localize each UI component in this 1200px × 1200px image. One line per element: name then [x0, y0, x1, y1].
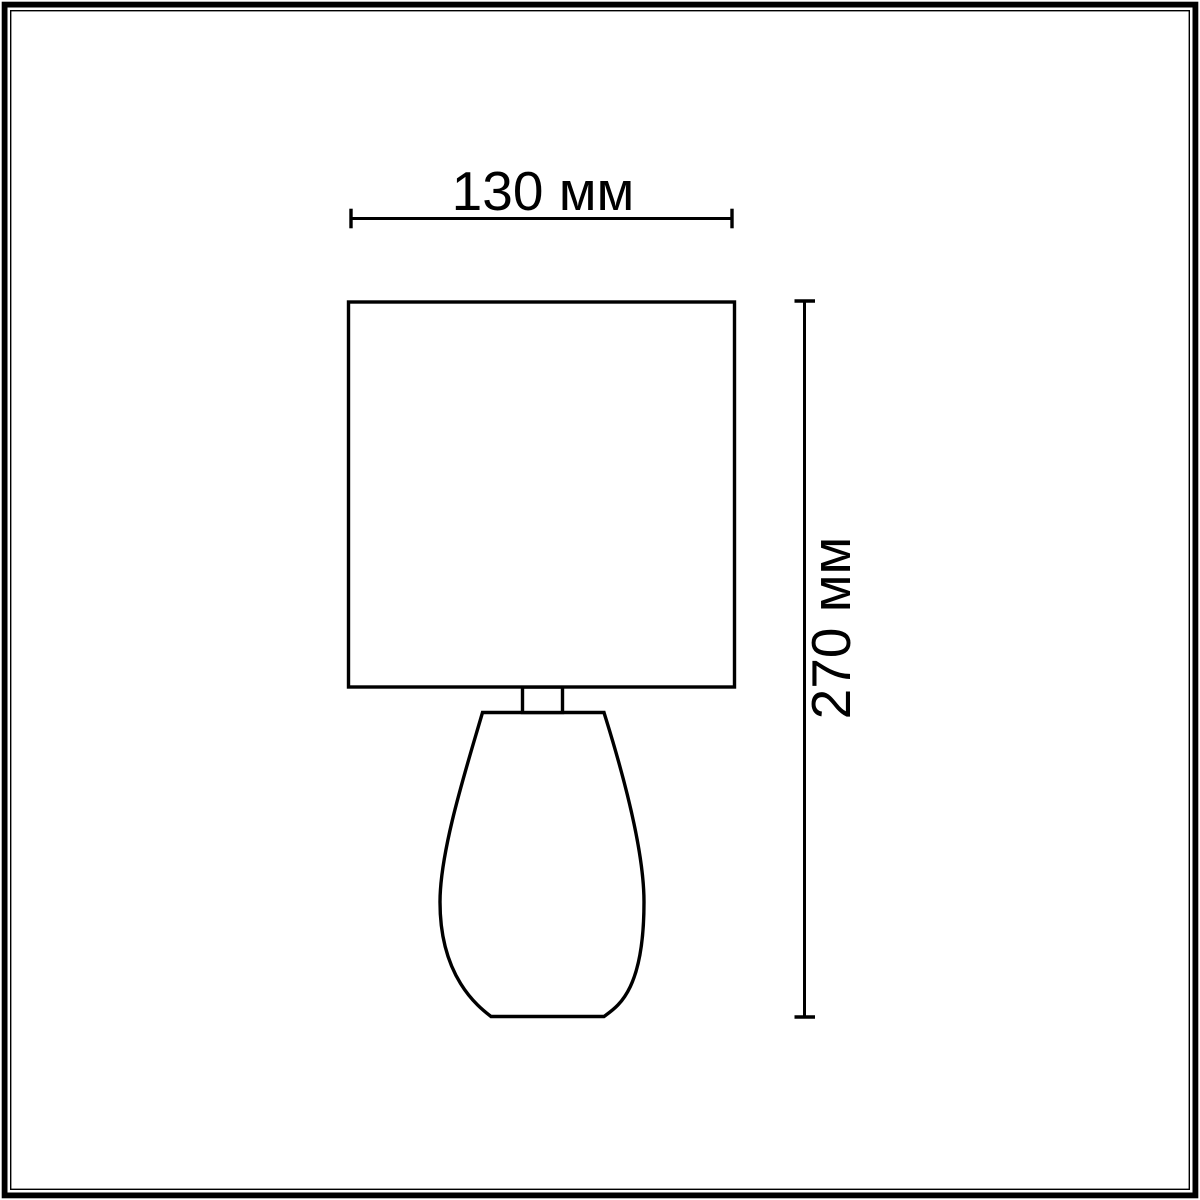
svg-text:130 мм: 130 мм	[452, 160, 635, 222]
svg-text:270 мм: 270 мм	[800, 537, 862, 720]
